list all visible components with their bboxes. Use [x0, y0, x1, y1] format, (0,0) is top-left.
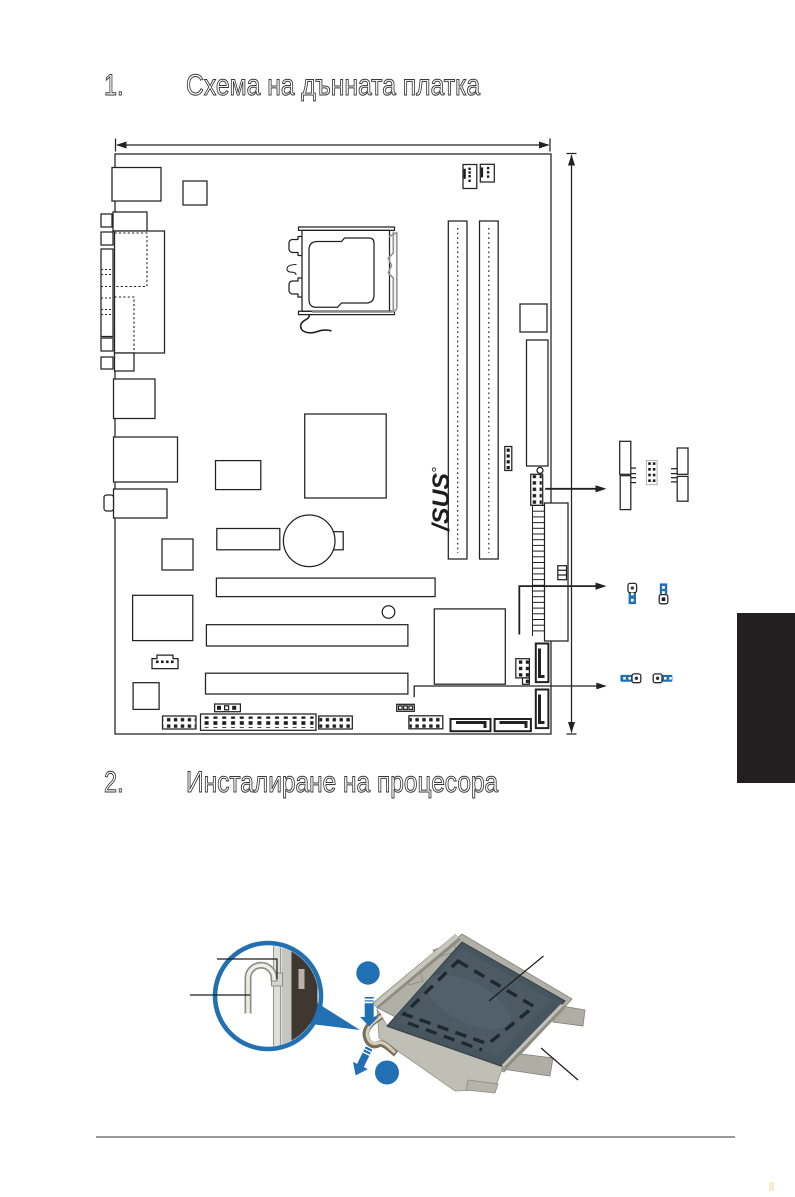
- svg-text:/SUS: /SUS: [428, 473, 455, 532]
